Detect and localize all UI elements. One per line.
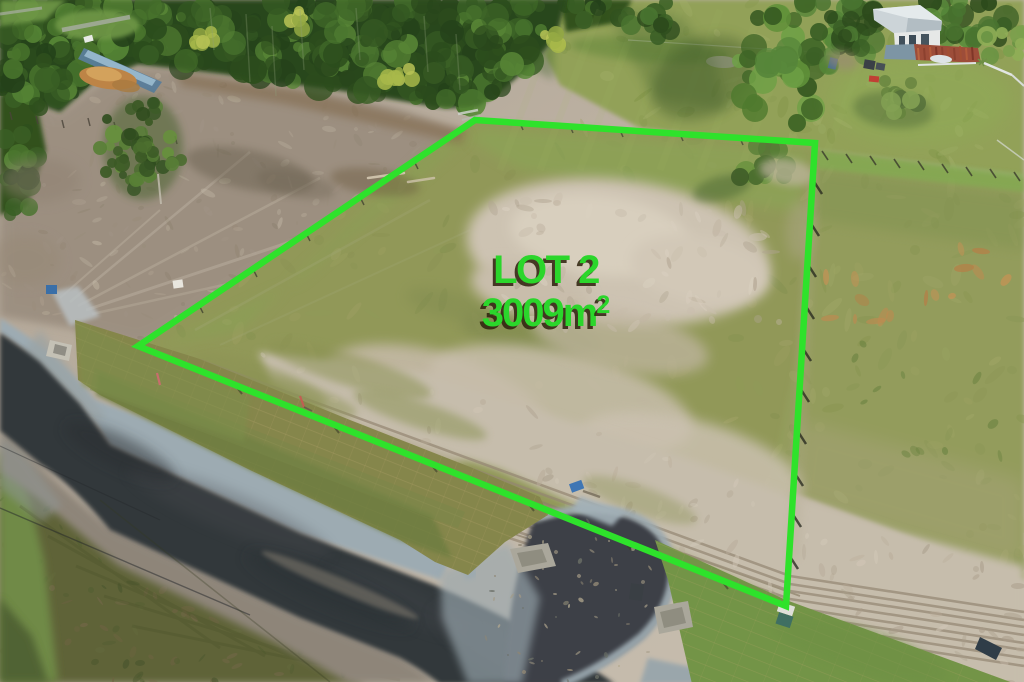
svg-text:3009m2: 3009m2 (482, 291, 610, 335)
svg-text:LOT 2: LOT 2 (493, 248, 599, 292)
